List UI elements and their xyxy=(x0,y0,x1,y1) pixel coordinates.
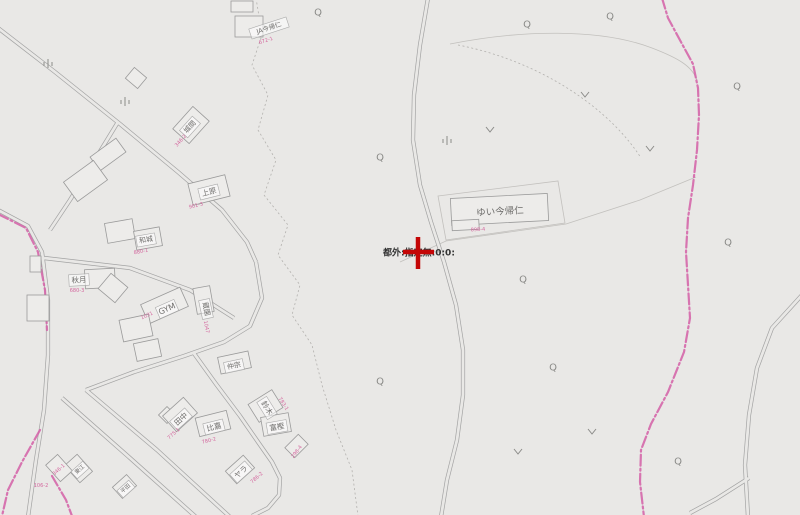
map-label: ゆい今帰仁 xyxy=(476,204,525,218)
well-symbol-q: Q xyxy=(376,377,384,388)
map-label: 秋月 xyxy=(69,274,90,287)
well-symbol-q: Q xyxy=(606,12,614,23)
well-symbol-q: Q xyxy=(523,20,531,31)
well-symbol-q: Q xyxy=(674,457,682,468)
map-canvas[interactable]: JA今帰仁城間上原和城秋月GYM蔵園仲宗田中比嘉鈴木富樫ヤラ東江平田ゆい今帰仁6… xyxy=(0,0,800,515)
building-outline xyxy=(30,256,41,272)
building-outline xyxy=(104,219,135,244)
map-label-text: 秋月 xyxy=(71,274,87,285)
building xyxy=(231,1,253,12)
building xyxy=(104,219,135,244)
well-symbol-q: Q xyxy=(549,363,557,374)
building xyxy=(30,256,41,272)
well-symbol-q: Q xyxy=(376,153,384,164)
well-symbol-q: Q xyxy=(519,275,527,286)
lot-number-label: 680-3 xyxy=(70,288,85,294)
building xyxy=(27,295,49,321)
well-symbol-q: Q xyxy=(733,82,741,93)
lot-number-label: 106-2 xyxy=(34,483,49,489)
well-symbol-q: Q xyxy=(314,8,322,19)
map-label-text: ゆい今帰仁 xyxy=(476,204,525,218)
map-viewer: JA今帰仁城間上原和城秋月GYM蔵園仲宗田中比嘉鈴木富樫ヤラ東江平田ゆい今帰仁6… xyxy=(0,0,800,515)
building-outline xyxy=(27,295,49,321)
building-outline xyxy=(231,1,253,12)
lot-number-label: 898-4 xyxy=(471,227,486,234)
well-symbol-q: Q xyxy=(724,238,732,249)
